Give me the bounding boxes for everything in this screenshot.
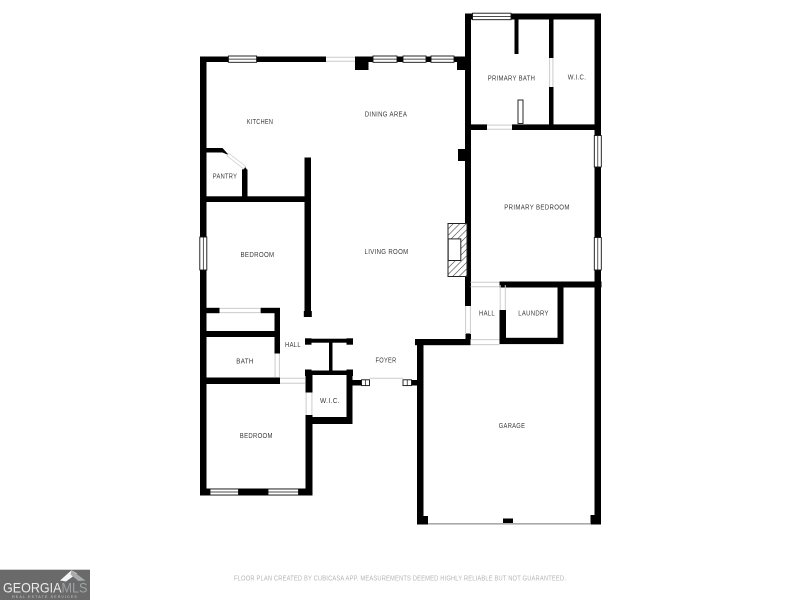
svg-text:FLOOR PLAN CREATED BY CUBICASA: FLOOR PLAN CREATED BY CUBICASA APP. MEAS… [234,576,566,583]
svg-text:LAUNDRY: LAUNDRY [518,309,549,318]
svg-text:BEDROOM: BEDROOM [241,250,275,259]
svg-text:PRIMARY BATH: PRIMARY BATH [488,74,536,83]
svg-text:DINING AREA: DINING AREA [365,110,408,119]
svg-text:FOYER: FOYER [376,356,397,365]
svg-text:PANTRY: PANTRY [213,172,238,181]
svg-text:BATH: BATH [236,357,254,366]
svg-text:W.I.C.: W.I.C. [320,396,340,405]
svg-text:HALL: HALL [285,340,301,349]
svg-text:MLS: MLS [62,579,88,595]
svg-text:HALL: HALL [479,309,495,318]
svg-text:GEORGIA: GEORGIA [3,579,62,595]
svg-text:LIVING ROOM: LIVING ROOM [365,247,409,256]
svg-text:W.I.C.: W.I.C. [568,73,587,82]
svg-text:GARAGE: GARAGE [499,421,526,430]
svg-text:KITCHEN: KITCHEN [247,117,274,126]
svg-text:REAL ESTATE SERVICES: REAL ESTATE SERVICES [12,595,78,599]
svg-text:PRIMARY BEDROOM: PRIMARY BEDROOM [504,203,570,212]
svg-text:BEDROOM: BEDROOM [240,431,273,440]
